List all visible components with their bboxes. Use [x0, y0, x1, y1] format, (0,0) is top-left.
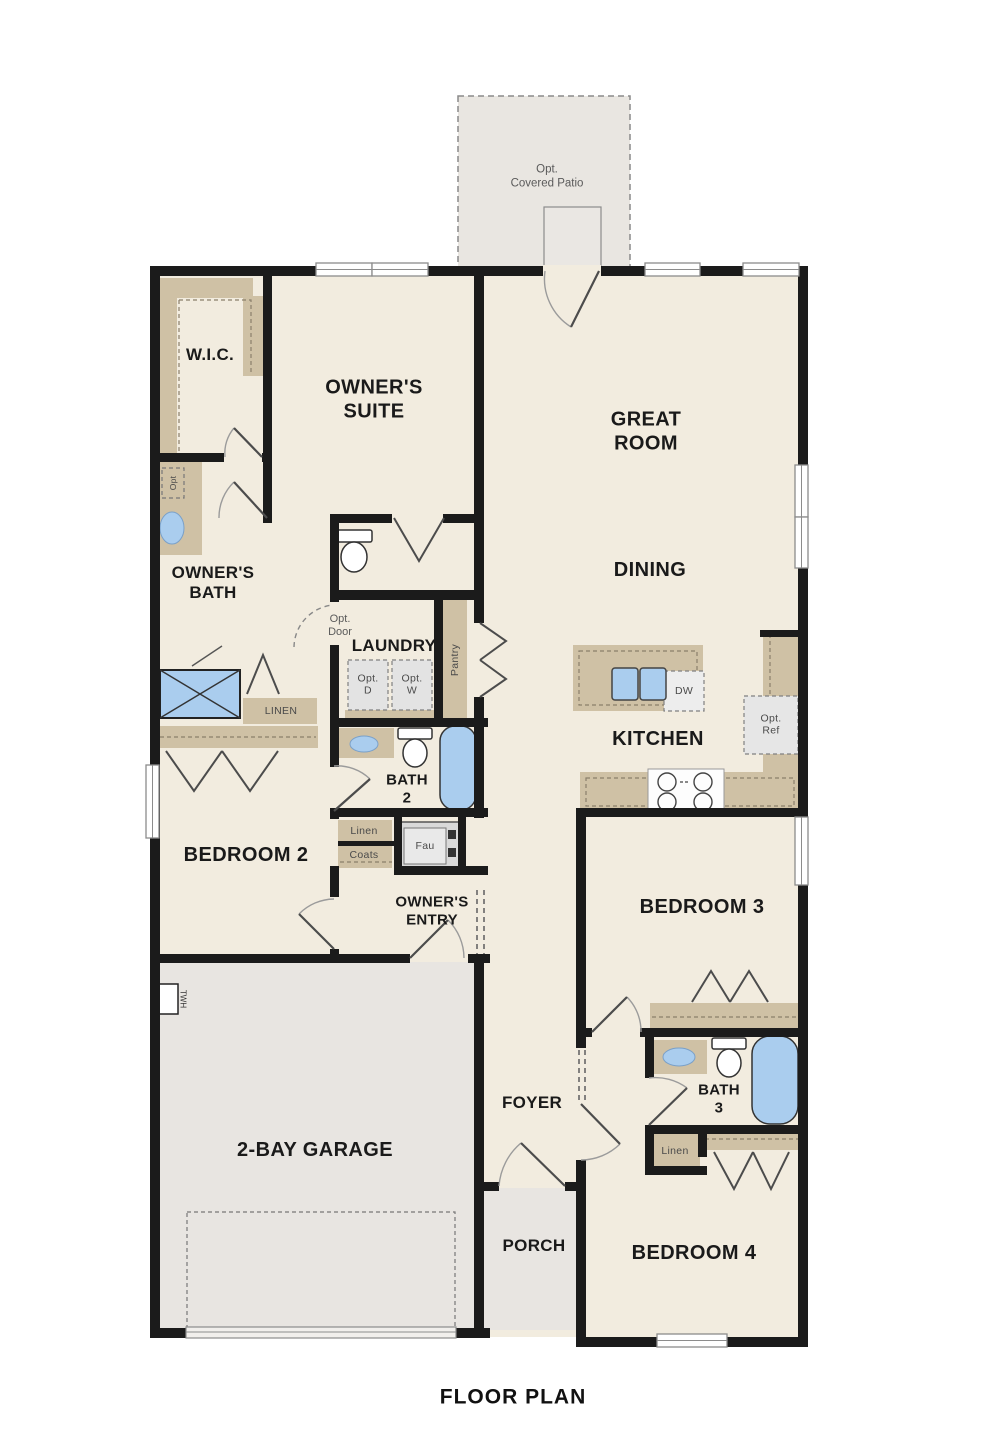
bath2-sink [350, 736, 378, 752]
floor-plan-canvas: Opt. Covered Patio W.I.C. OWNER'S SUITE … [0, 0, 1000, 1447]
opt-vanity-label: Opt [168, 476, 178, 491]
bath2-tub [440, 726, 476, 810]
great-room-label: GREAT ROOM [611, 408, 682, 455]
owners-bath-label: OWNER'S BATH [172, 563, 255, 603]
linen-bath3-label: Linen [661, 1145, 688, 1157]
porch-floor [482, 1188, 580, 1330]
laundry-label: LAUNDRY [352, 636, 437, 656]
owners-suite-label: OWNER'S SUITE [325, 376, 423, 423]
kitchen-sink-left [612, 668, 638, 700]
kitchen-sink-right [640, 668, 666, 700]
porch-label: PORCH [503, 1236, 566, 1256]
opt-refrigerator-label: Opt. Ref [760, 713, 781, 738]
pantry-label: Pantry [449, 644, 461, 676]
owners-linen-label: LINEN [265, 705, 297, 717]
owners-entry-label: OWNER'S ENTRY [395, 893, 468, 928]
page-title: FLOOR PLAN [440, 1386, 587, 1411]
twh-label: TWH [178, 990, 187, 1008]
patio-step [544, 207, 601, 268]
bath3-label: BATH 3 [698, 1081, 740, 1116]
stove-cooktop [648, 769, 724, 814]
garage-label: 2-BAY GARAGE [237, 1139, 393, 1163]
opt-covered-patio-label: Opt. Covered Patio [511, 163, 584, 190]
foyer-label: FOYER [502, 1093, 562, 1113]
opt-washer-label: Opt. W [401, 673, 422, 698]
dining-label: DINING [614, 559, 686, 583]
dishwasher-label: DW [675, 685, 693, 697]
garage-door-opening [186, 1327, 456, 1338]
owners-bath-sink [160, 512, 184, 544]
wic-shelf-right [243, 296, 263, 376]
wic-shelf-top [157, 278, 253, 298]
kitchen-label: KITCHEN [612, 728, 704, 752]
opt-door-label: Opt. Door [328, 613, 352, 639]
kitchen-counter-right-top [763, 630, 800, 698]
patio-door-opening [543, 265, 601, 277]
bedroom3-label: BEDROOM 3 [640, 896, 765, 920]
floor-plan-drawing [0, 0, 1000, 1447]
coats-label: Coats [350, 849, 379, 861]
bedroom2-label: BEDROOM 2 [184, 844, 309, 868]
bath3-sink [663, 1048, 695, 1066]
fau-label: Fau [416, 840, 435, 852]
bath3-tub [752, 1036, 798, 1124]
bath2-label: BATH 2 [386, 771, 428, 806]
bedroom4-label: BEDROOM 4 [632, 1242, 757, 1266]
opt-dryer-label: Opt. D [357, 673, 378, 698]
linen-hall-label: Linen [350, 825, 377, 837]
wic-label: W.I.C. [186, 345, 234, 365]
